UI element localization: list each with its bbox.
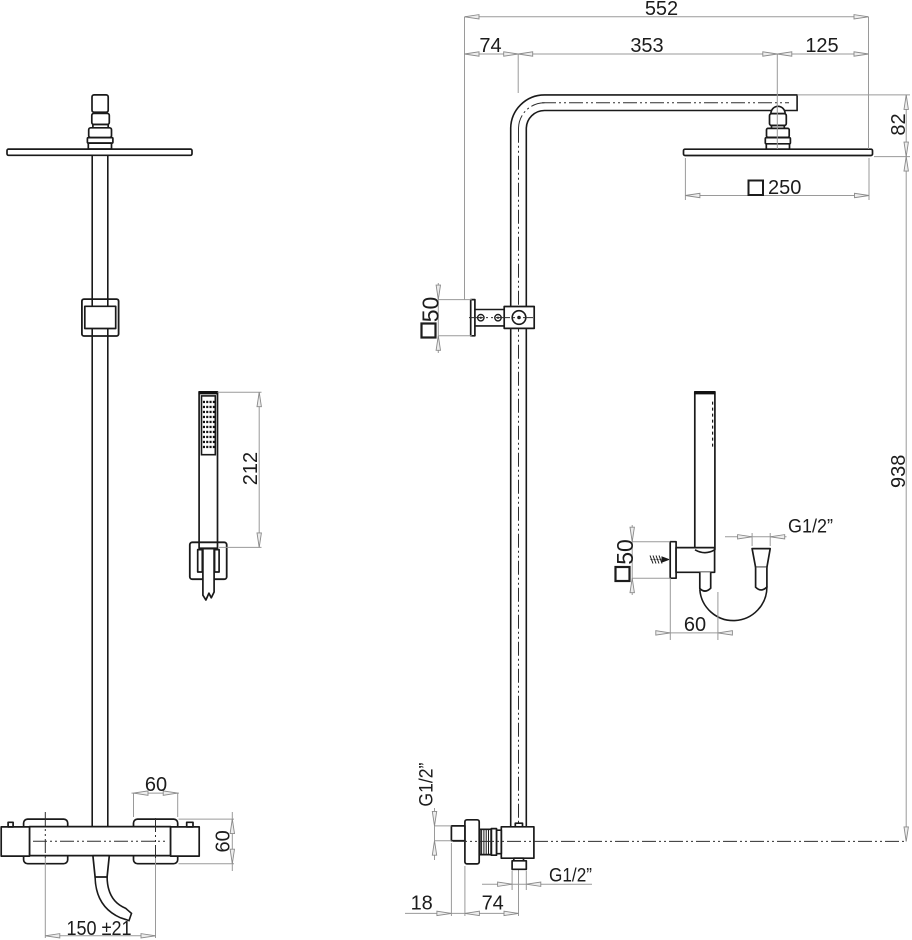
svg-text:353: 353: [630, 35, 663, 57]
svg-text:50: 50: [612, 539, 638, 565]
svg-text:G1/2”: G1/2”: [788, 517, 833, 538]
svg-text:50: 50: [418, 297, 444, 323]
svg-text:212: 212: [240, 452, 262, 485]
svg-text:60: 60: [684, 614, 706, 636]
svg-text:60: 60: [213, 830, 235, 852]
svg-text:82: 82: [888, 113, 910, 135]
svg-text:G1/2”: G1/2”: [549, 866, 592, 887]
svg-text:18: 18: [411, 893, 433, 915]
svg-text:60: 60: [145, 774, 167, 796]
svg-text:552: 552: [645, 0, 678, 20]
svg-text:150 ±21: 150 ±21: [67, 918, 132, 940]
svg-text:74: 74: [479, 35, 501, 57]
svg-text:G1/2”: G1/2”: [417, 763, 438, 807]
svg-text:125: 125: [805, 35, 838, 57]
svg-text:74: 74: [482, 893, 504, 915]
svg-text:250: 250: [768, 177, 801, 199]
svg-text:938: 938: [888, 455, 910, 488]
